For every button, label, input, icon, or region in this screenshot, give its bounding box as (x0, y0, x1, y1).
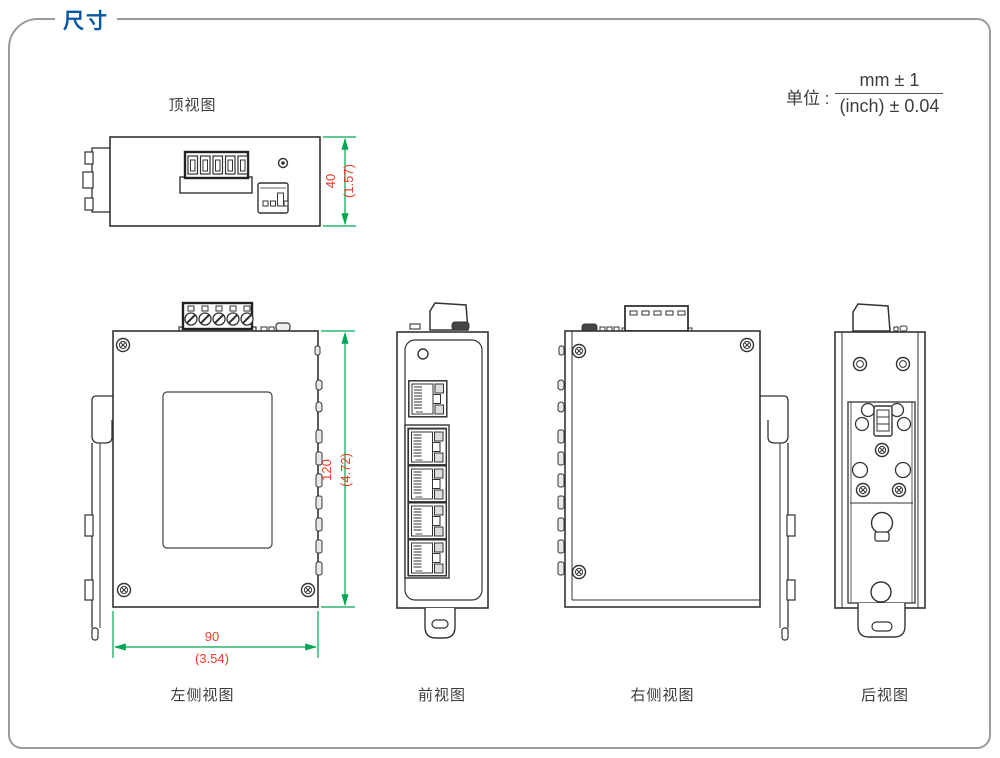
right-view-label: 右侧视图 (610, 684, 715, 705)
left-dim-height-inch: (4.72) (338, 435, 354, 505)
rear-view-drawing (820, 298, 950, 643)
dimension-drawing-page: 尺寸 单位 : mm ± 1 (inch) ± 0.04 (0, 0, 1000, 758)
unit-note: 单位 : mm ± 1 (inch) ± 0.04 (786, 70, 943, 117)
left-dim-width-mm: 90 (177, 629, 247, 645)
top-view-label: 顶视图 (145, 94, 240, 115)
unit-denominator: (inch) ± 0.04 (835, 93, 943, 117)
top-dim-height-inch: (1.57) (341, 146, 357, 216)
unit-fraction: mm ± 1 (inch) ± 0.04 (835, 70, 943, 117)
unit-numerator: mm ± 1 (845, 70, 933, 93)
left-dim-width-inch: (3.54) (177, 651, 247, 667)
page-title: 尺寸 (55, 5, 117, 35)
unit-label: 单位 : (786, 78, 829, 109)
left-view-label: 左侧视图 (150, 684, 255, 705)
top-dim-height-mm: 40 (323, 146, 339, 216)
right-view-drawing (540, 298, 800, 673)
front-view-drawing (390, 298, 500, 643)
rear-view-label: 后视图 (840, 684, 930, 705)
front-view-label: 前视图 (396, 684, 488, 705)
left-dim-height-mm: 120 (319, 435, 335, 505)
